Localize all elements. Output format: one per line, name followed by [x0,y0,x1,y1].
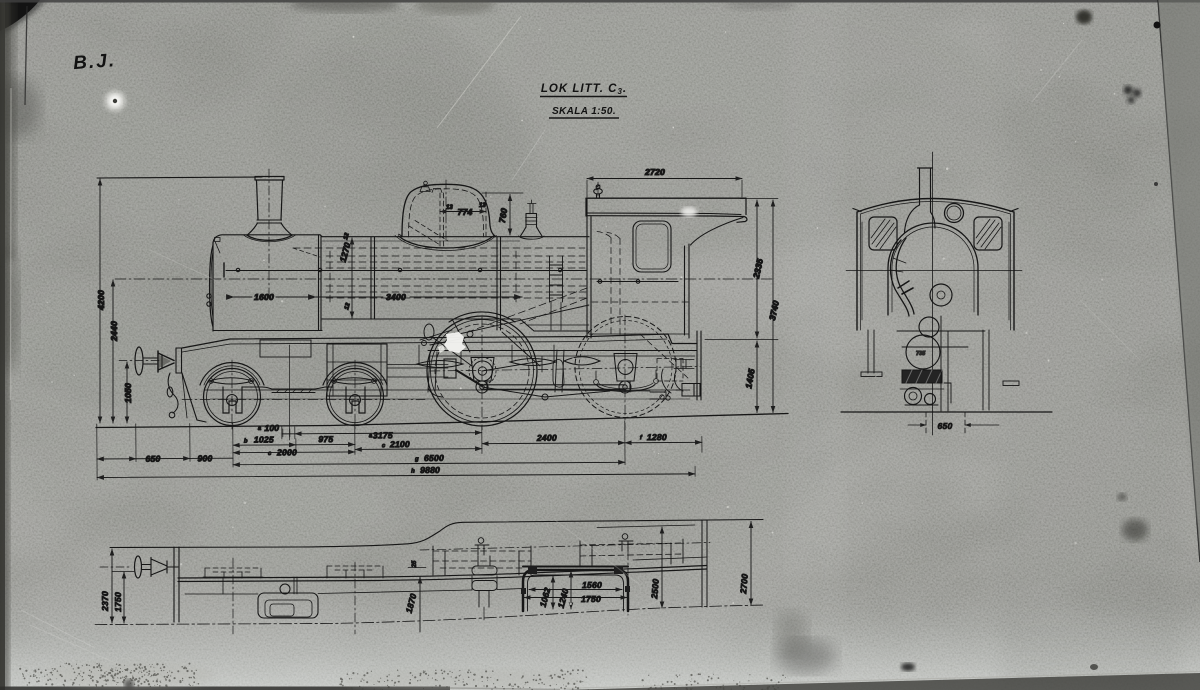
svg-text:2370: 2370 [100,591,110,612]
svg-text:900: 900 [197,453,212,463]
svg-text:1600: 1600 [254,292,274,302]
svg-text:1050: 1050 [123,383,133,403]
svg-text:2700: 2700 [738,573,750,595]
svg-text:h: h [411,469,415,475]
svg-text:2100: 2100 [389,439,410,449]
svg-text:2000: 2000 [276,447,297,457]
svg-text:650: 650 [938,421,953,431]
svg-text:774: 774 [458,207,473,217]
svg-text:1280: 1280 [647,432,667,442]
svg-text:25: 25 [412,560,418,568]
svg-text:SKALA 1:50.: SKALA 1:50. [552,106,616,117]
svg-text:100: 100 [264,423,279,433]
svg-text:2400: 2400 [536,433,557,443]
svg-text:g: g [414,457,419,463]
svg-text:4200: 4200 [96,290,106,311]
svg-text:1750: 1750 [581,594,601,604]
svg-text:1750: 1750 [113,592,123,612]
svg-text:9880: 9880 [420,465,440,475]
svg-text:3400: 3400 [386,292,406,302]
svg-text:13: 13 [446,205,453,211]
svg-text:b: b [244,439,248,445]
svg-text:1560: 1560 [582,580,602,590]
svg-text:B.J.: B.J. [72,50,116,74]
svg-text:2720: 2720 [644,167,665,177]
svg-text:975: 975 [318,434,333,444]
svg-text:735: 735 [916,351,926,357]
svg-text:1025: 1025 [254,434,274,444]
svg-text:2440: 2440 [109,321,119,342]
svg-text:6500: 6500 [424,453,444,463]
svg-text:13: 13 [479,203,486,209]
svg-text:2500: 2500 [649,578,661,600]
svg-text:LOK LITT. C3.: LOK LITT. C3. [541,83,627,96]
svg-text:650: 650 [145,454,160,464]
